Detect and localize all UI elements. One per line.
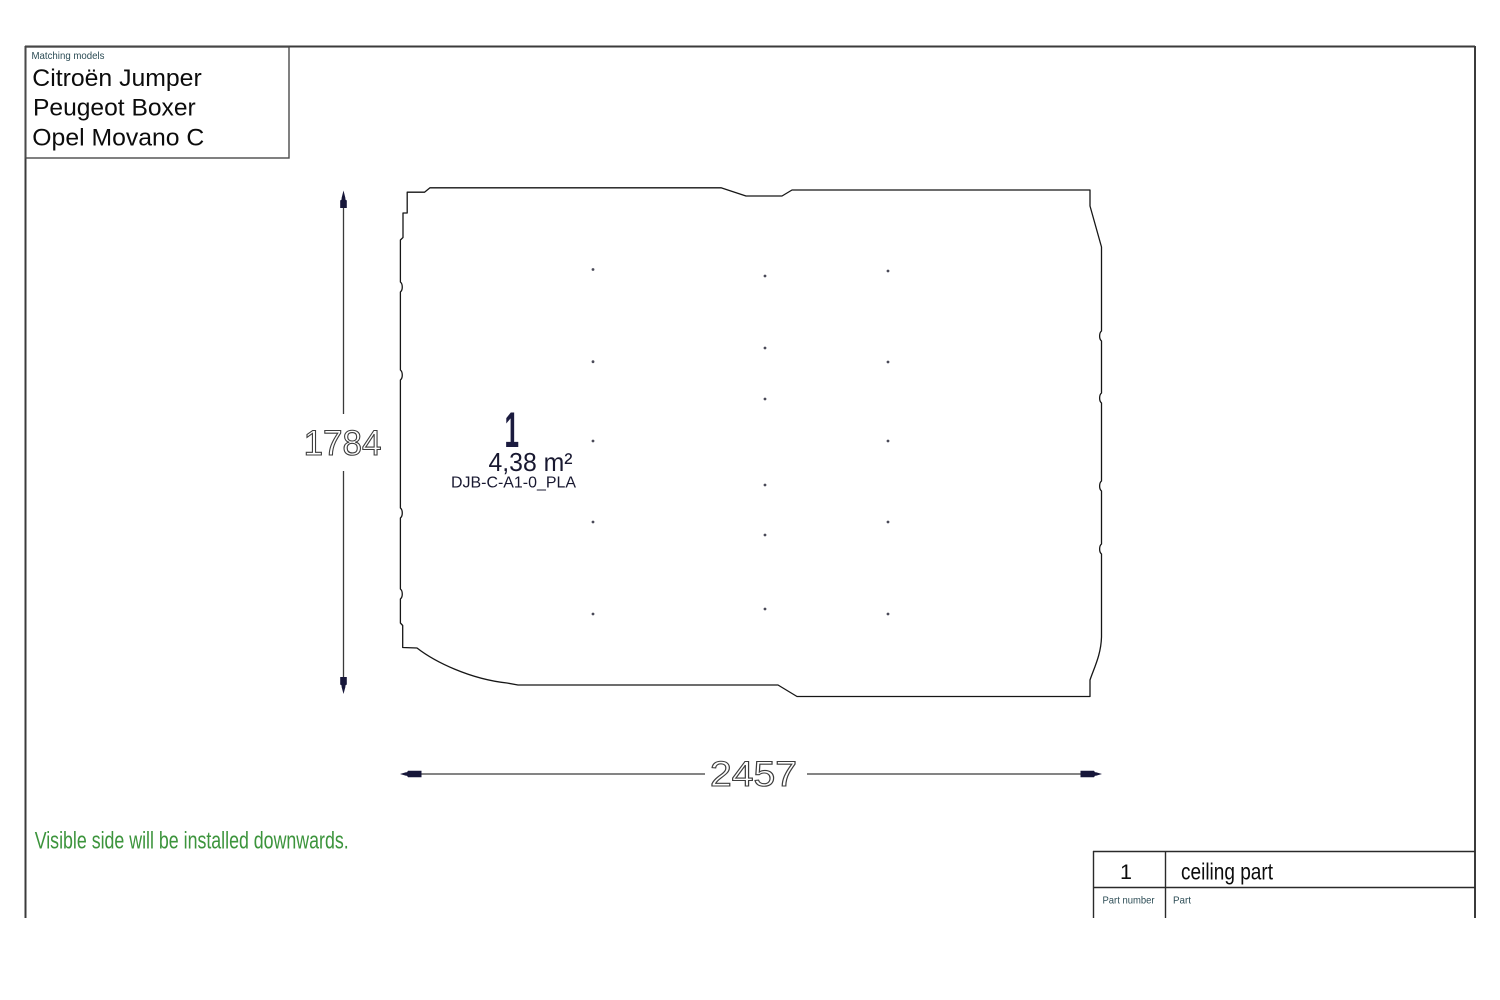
svg-text:1: 1: [1120, 860, 1132, 884]
svg-text:Peugeot Boxer: Peugeot Boxer: [33, 95, 196, 122]
svg-text:4,38 m²: 4,38 m²: [489, 447, 573, 477]
svg-text:Citroën Jumper: Citroën Jumper: [32, 65, 201, 92]
svg-text:DJB-C-A1-0_PLA: DJB-C-A1-0_PLA: [451, 475, 576, 492]
svg-text:1784: 1784: [304, 424, 382, 463]
svg-text:Part: Part: [1173, 895, 1191, 907]
svg-text:Opel Movano C: Opel Movano C: [32, 125, 204, 152]
svg-text:ceiling part: ceiling part: [1181, 859, 1273, 885]
svg-text:Part number: Part number: [1103, 895, 1155, 907]
svg-text:2457: 2457: [710, 755, 797, 794]
svg-text:Matching models: Matching models: [32, 50, 105, 62]
svg-text:Visible side will be installed: Visible side will be installed downwards…: [35, 828, 349, 855]
